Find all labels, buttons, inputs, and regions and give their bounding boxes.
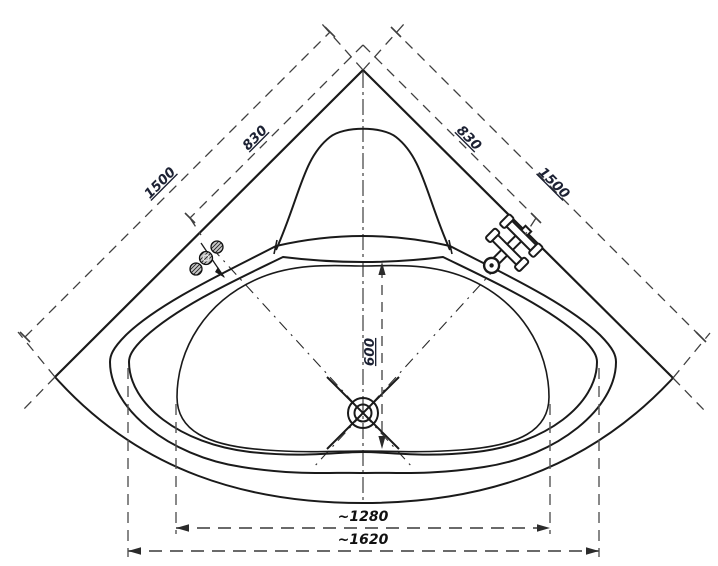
left-wall-edge <box>55 70 363 377</box>
right-wall-edge <box>363 70 673 378</box>
dim-right-wall: 830 1500 <box>363 24 710 410</box>
dim-label-left-830: 830 <box>240 123 271 154</box>
front-apron-arc <box>55 377 673 503</box>
dim-label-1280: ~1280 <box>338 509 389 525</box>
dim-line-right-830 <box>363 45 536 218</box>
dim-label-left-1500: 1500 <box>141 164 179 202</box>
bathtub-outline <box>55 70 673 503</box>
bathtub-plan-drawing: 1500 830 830 1500 600 ~1280 <box>0 0 718 566</box>
dim-line-left-830 <box>190 45 363 218</box>
jet-knobs-icon <box>190 241 225 278</box>
dim-left-wall: 1500 830 <box>18 24 363 409</box>
dim-label-right-1500: 1500 <box>535 164 573 202</box>
dim-label-right-830: 830 <box>453 123 484 154</box>
dim-label-1620: ~1620 <box>338 532 389 548</box>
dim-line-left-1500 <box>25 32 330 337</box>
diagonal-axis-left <box>212 248 413 468</box>
technical-drawing-canvas: 1500 830 830 1500 600 ~1280 <box>0 0 718 566</box>
dim-label-600: 600 <box>362 338 378 366</box>
diagonal-axis-right <box>313 248 514 468</box>
